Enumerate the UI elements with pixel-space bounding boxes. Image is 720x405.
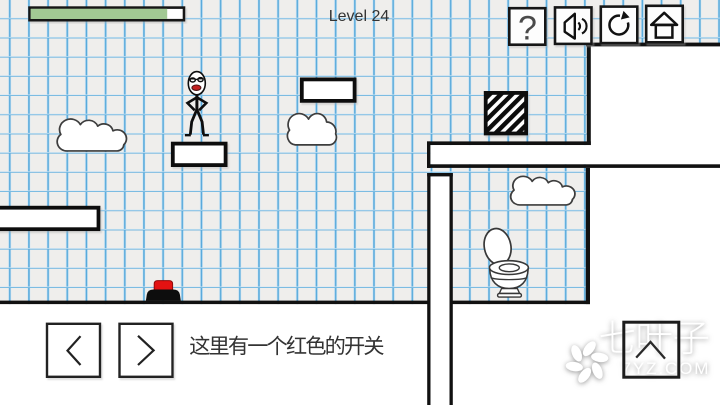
svg-text:7YZ.COM: 7YZ.COM	[622, 359, 711, 378]
svg-text:Level 24: Level 24	[329, 8, 390, 25]
svg-text:?: ?	[518, 9, 537, 47]
